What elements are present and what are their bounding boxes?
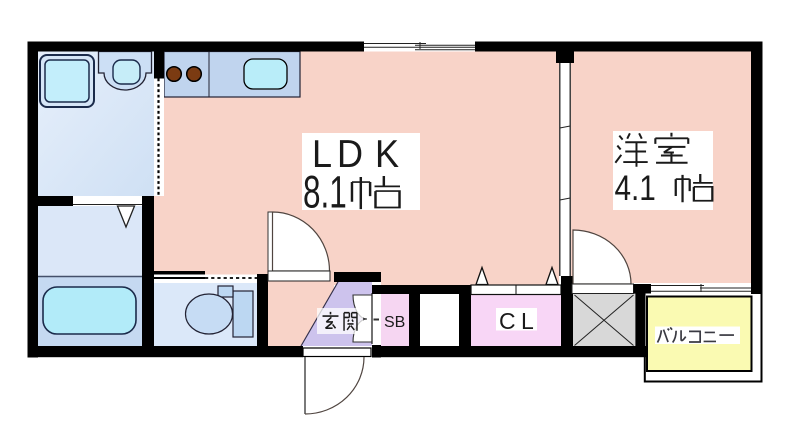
svg-text:SB: SB: [384, 314, 405, 331]
svg-text:8.1: 8.1: [303, 168, 347, 218]
svg-text:4.1: 4.1: [615, 169, 656, 208]
svg-text:CL: CL: [499, 308, 539, 334]
